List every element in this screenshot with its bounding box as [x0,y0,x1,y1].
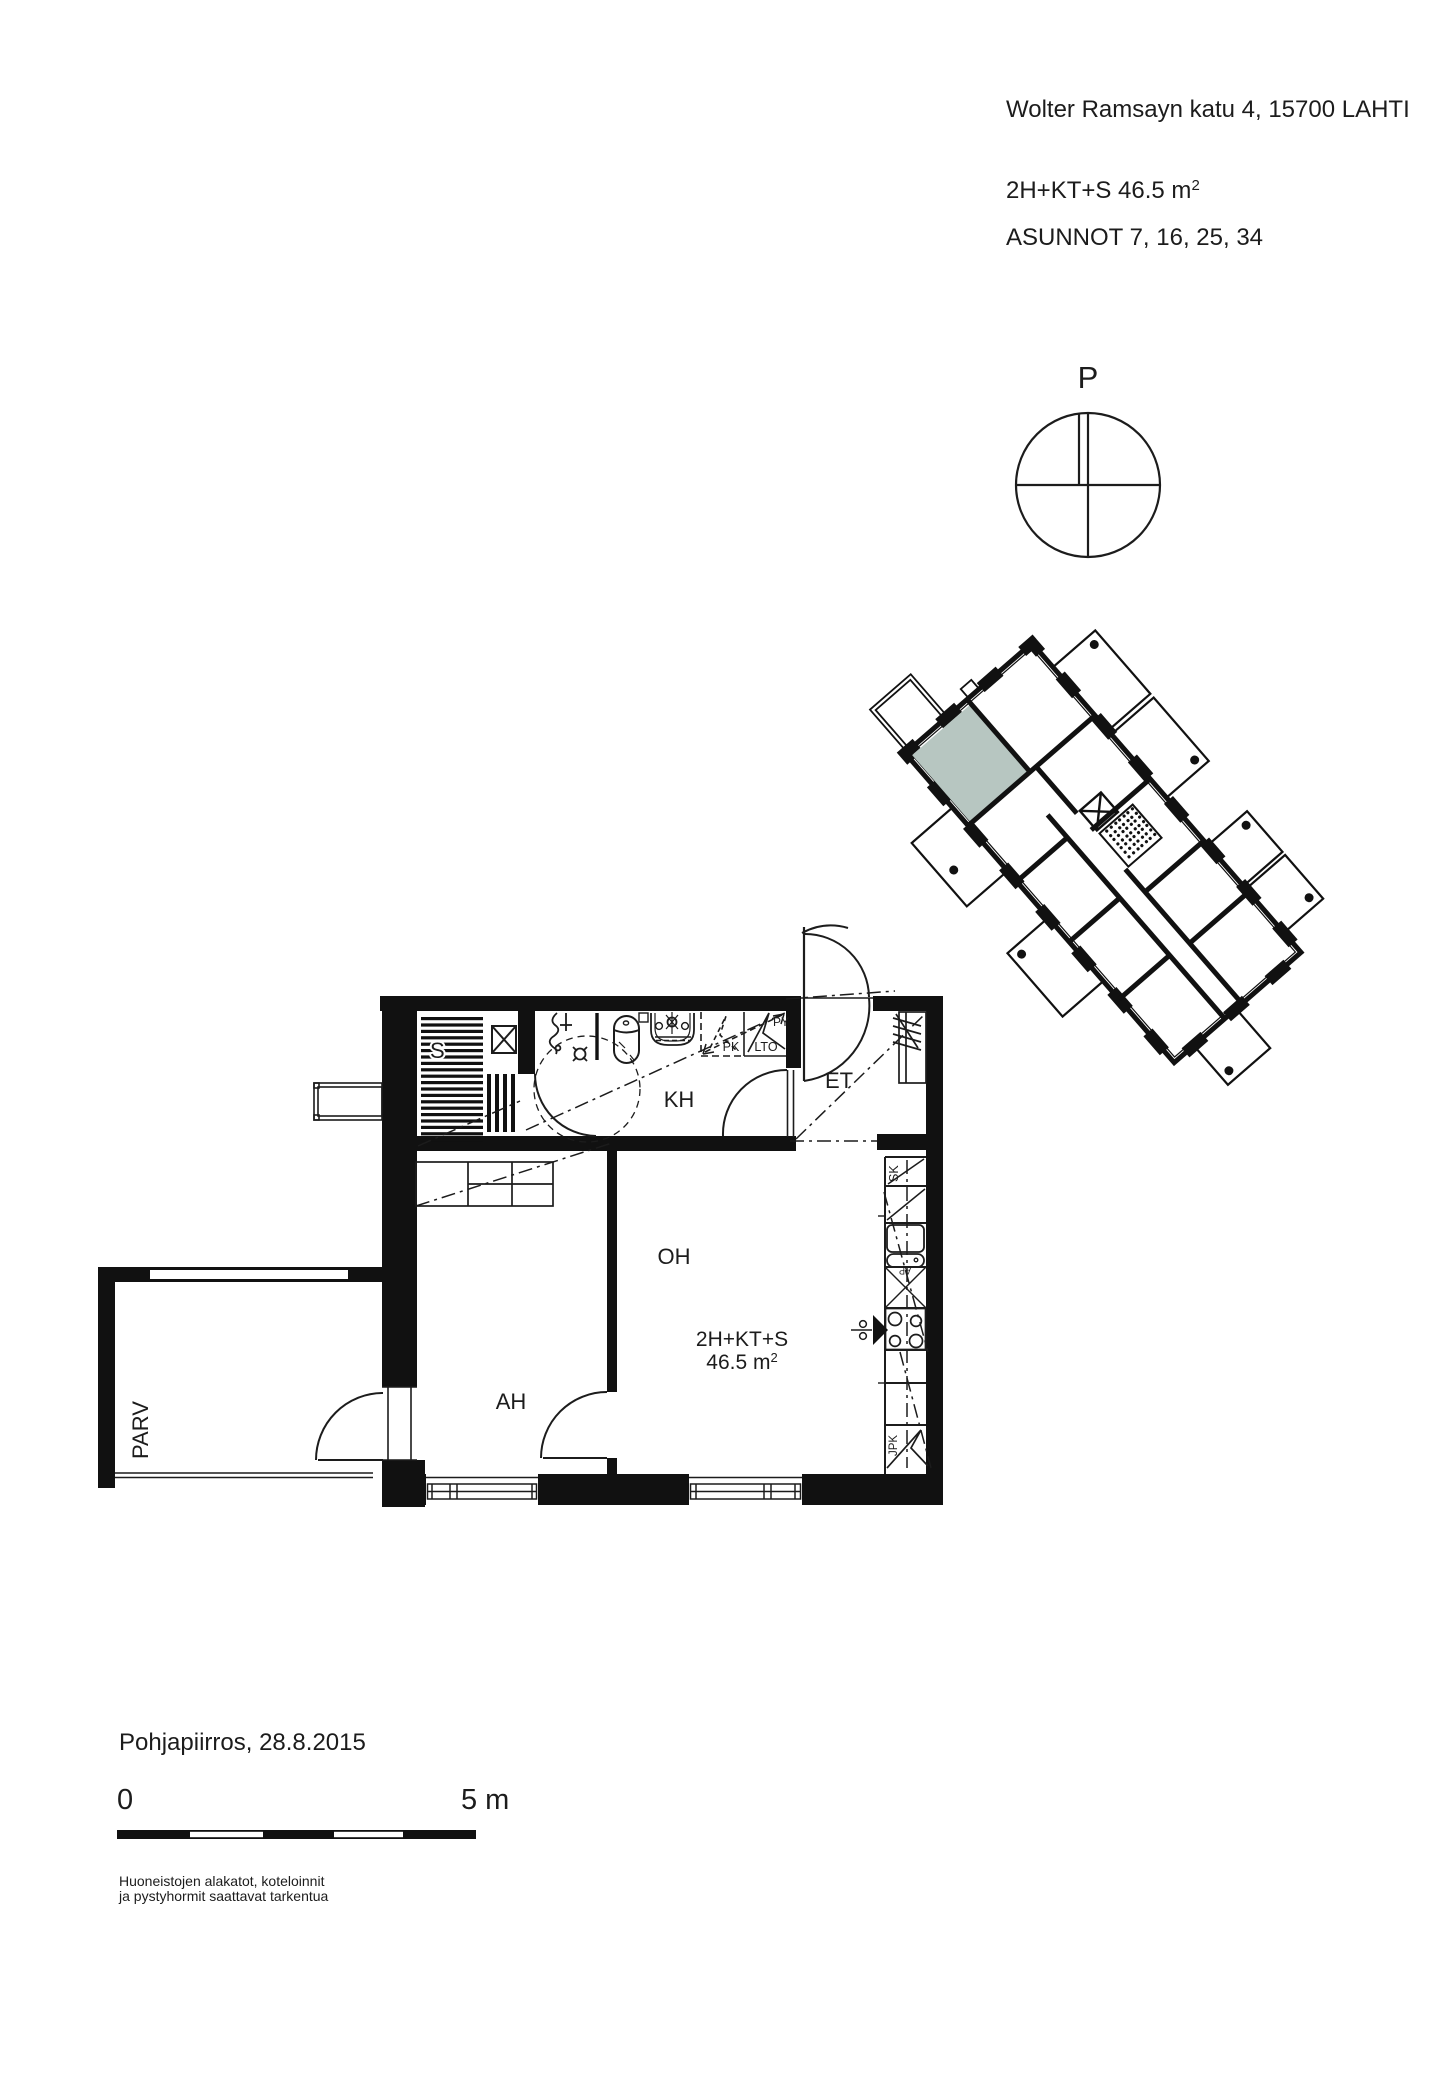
svg-text:KH: KH [664,1087,695,1112]
svg-text:0: 0 [117,1784,133,1816]
svg-text:2H+KT+S 46.5 m2: 2H+KT+S 46.5 m2 [1006,177,1200,204]
svg-text:Pohjapiirros, 28.8.2015: Pohjapiirros, 28.8.2015 [119,1729,366,1756]
svg-text:PK: PK [723,1040,740,1054]
svg-text:JPK: JPK [888,1435,900,1456]
svg-text:5 m: 5 m [461,1784,509,1816]
svg-text:46.5 m2: 46.5 m2 [706,1350,777,1374]
svg-text:P: P [1078,360,1099,395]
svg-text:SK: SK [887,1165,901,1182]
svg-text:LTO: LTO [754,1040,777,1054]
svg-text:Huoneistojen alakatot, koteloi: Huoneistojen alakatot, koteloinnit [119,1873,325,1889]
svg-text:PARV: PARV [128,1401,153,1459]
svg-text:Wolter Ramsayn katu 4, 15700 L: Wolter Ramsayn katu 4, 15700 LAHTI [1006,96,1410,123]
svg-text:2H+KT+S: 2H+KT+S [696,1328,788,1351]
svg-text:OH: OH [658,1244,691,1269]
svg-text:AH: AH [496,1389,527,1414]
svg-text:ET: ET [825,1068,853,1093]
svg-text:ja pystyhormit saattavat tarke: ja pystyhormit saattavat tarkentua [118,1888,329,1904]
svg-text:S: S [430,1038,445,1063]
svg-text:ASUNNOT 7, 16, 25, 34: ASUNNOT 7, 16, 25, 34 [1006,224,1263,251]
